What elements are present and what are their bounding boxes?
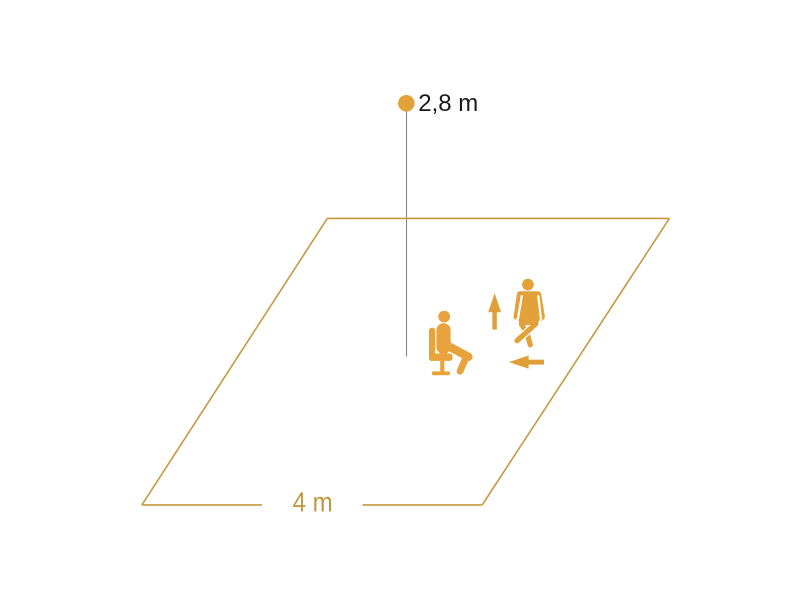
svg-text:4 m: 4 m (293, 486, 333, 517)
svg-text:2,8 m: 2,8 m (418, 90, 478, 117)
